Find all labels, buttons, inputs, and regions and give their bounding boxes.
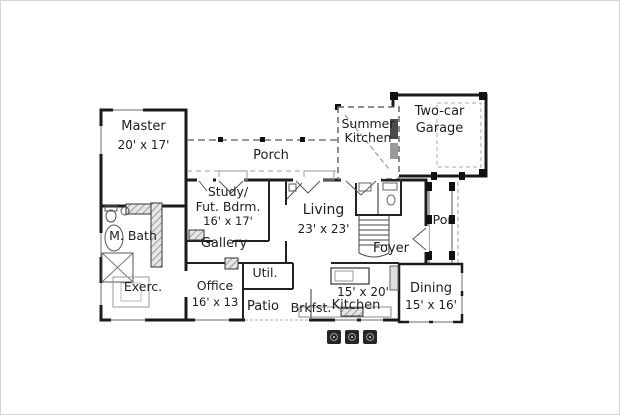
room-label-util: Util.	[245, 266, 285, 280]
kitchen-name: Kitchen	[325, 299, 387, 314]
porch-name: Porch	[236, 149, 306, 164]
master-name: Master	[101, 117, 186, 136]
study-line2: Fut. Bdrm.	[188, 199, 268, 214]
paver-squares	[327, 330, 377, 344]
room-label-m-bath: M. Bath	[101, 229, 165, 243]
exerc-name: Exerc.	[113, 280, 173, 294]
living-dims: 23' x 23'	[281, 220, 366, 239]
garage-line2: Garage	[393, 120, 486, 137]
room-label-porch: Porch	[236, 149, 306, 164]
office-dims: 16' x 13	[188, 294, 242, 310]
room-label-summer-kitchen: Summer Kitchen	[337, 117, 399, 145]
room-label-garage: Two-car Garage	[393, 103, 486, 137]
study-dims: 16' x 17'	[188, 214, 268, 229]
room-label-por: Por.	[430, 213, 458, 227]
porch-posts	[218, 104, 341, 142]
living-name: Living	[281, 201, 366, 220]
room-label-kitchen: Kitchen	[325, 299, 387, 314]
dining-name: Dining	[400, 281, 462, 297]
garage-line1: Two-car	[393, 103, 486, 120]
summer-kitchen-line2: Kitchen	[337, 131, 399, 145]
room-label-master: Master 20' x 17'	[101, 117, 186, 155]
study-line1: Study/	[188, 184, 268, 199]
room-label-gallery: Gallery	[191, 237, 257, 252]
room-label-patio: Patio	[240, 300, 286, 315]
por-name: Por.	[430, 213, 458, 227]
util-name: Util.	[245, 266, 285, 280]
master-dims: 20' x 17'	[101, 136, 186, 155]
office-name: Office	[188, 278, 242, 294]
floor-plan-canvas: Master 20' x 17' Porch Summer Kitchen Tw…	[0, 0, 620, 415]
foyer-name: Foyer	[367, 242, 415, 257]
room-label-living: Living 23' x 23'	[281, 201, 366, 239]
room-label-foyer: Foyer	[367, 242, 415, 257]
summer-kitchen-line1: Summer	[337, 117, 399, 131]
room-label-office: Office 16' x 13	[188, 278, 242, 310]
gallery-name: Gallery	[191, 237, 257, 252]
room-label-study: Study/ Fut. Bdrm. 16' x 17'	[188, 184, 268, 229]
patio-name: Patio	[240, 300, 286, 315]
m-bath-name: M. Bath	[101, 229, 165, 243]
room-label-dining: Dining 15' x 16'	[400, 281, 462, 313]
room-label-exerc: Exerc.	[113, 280, 173, 294]
dining-dims: 15' x 16'	[400, 297, 462, 313]
